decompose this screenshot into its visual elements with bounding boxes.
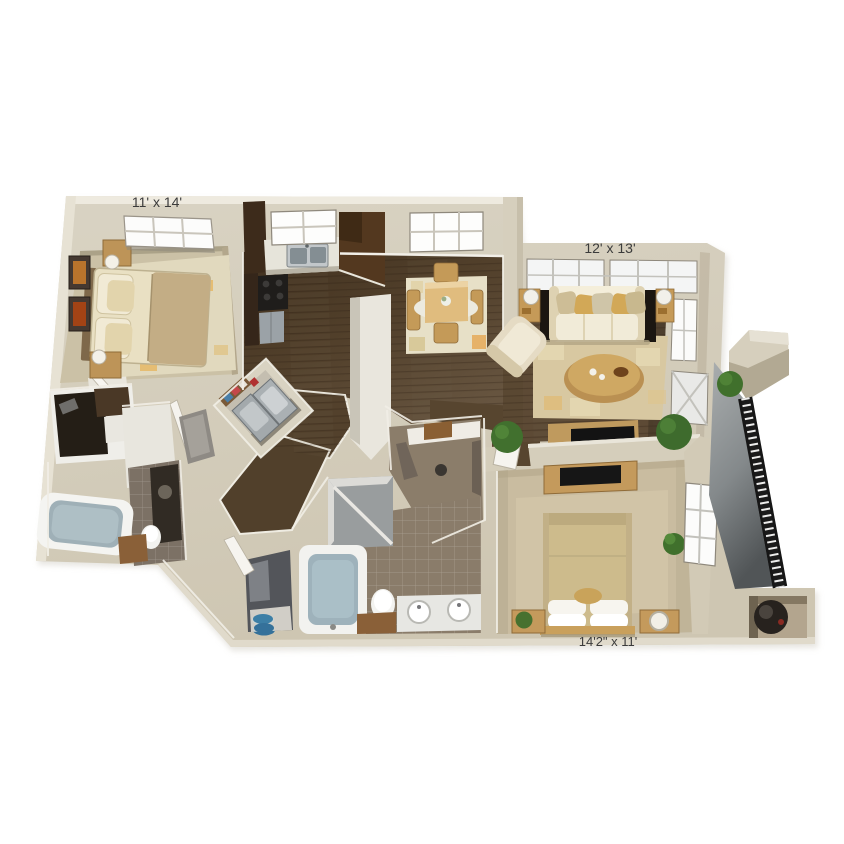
svg-text:11' x 14': 11' x 14' <box>132 194 182 210</box>
svg-text:12' x 13': 12' x 13' <box>584 240 635 256</box>
svg-text:14'2" x 11': 14'2" x 11' <box>579 634 638 649</box>
